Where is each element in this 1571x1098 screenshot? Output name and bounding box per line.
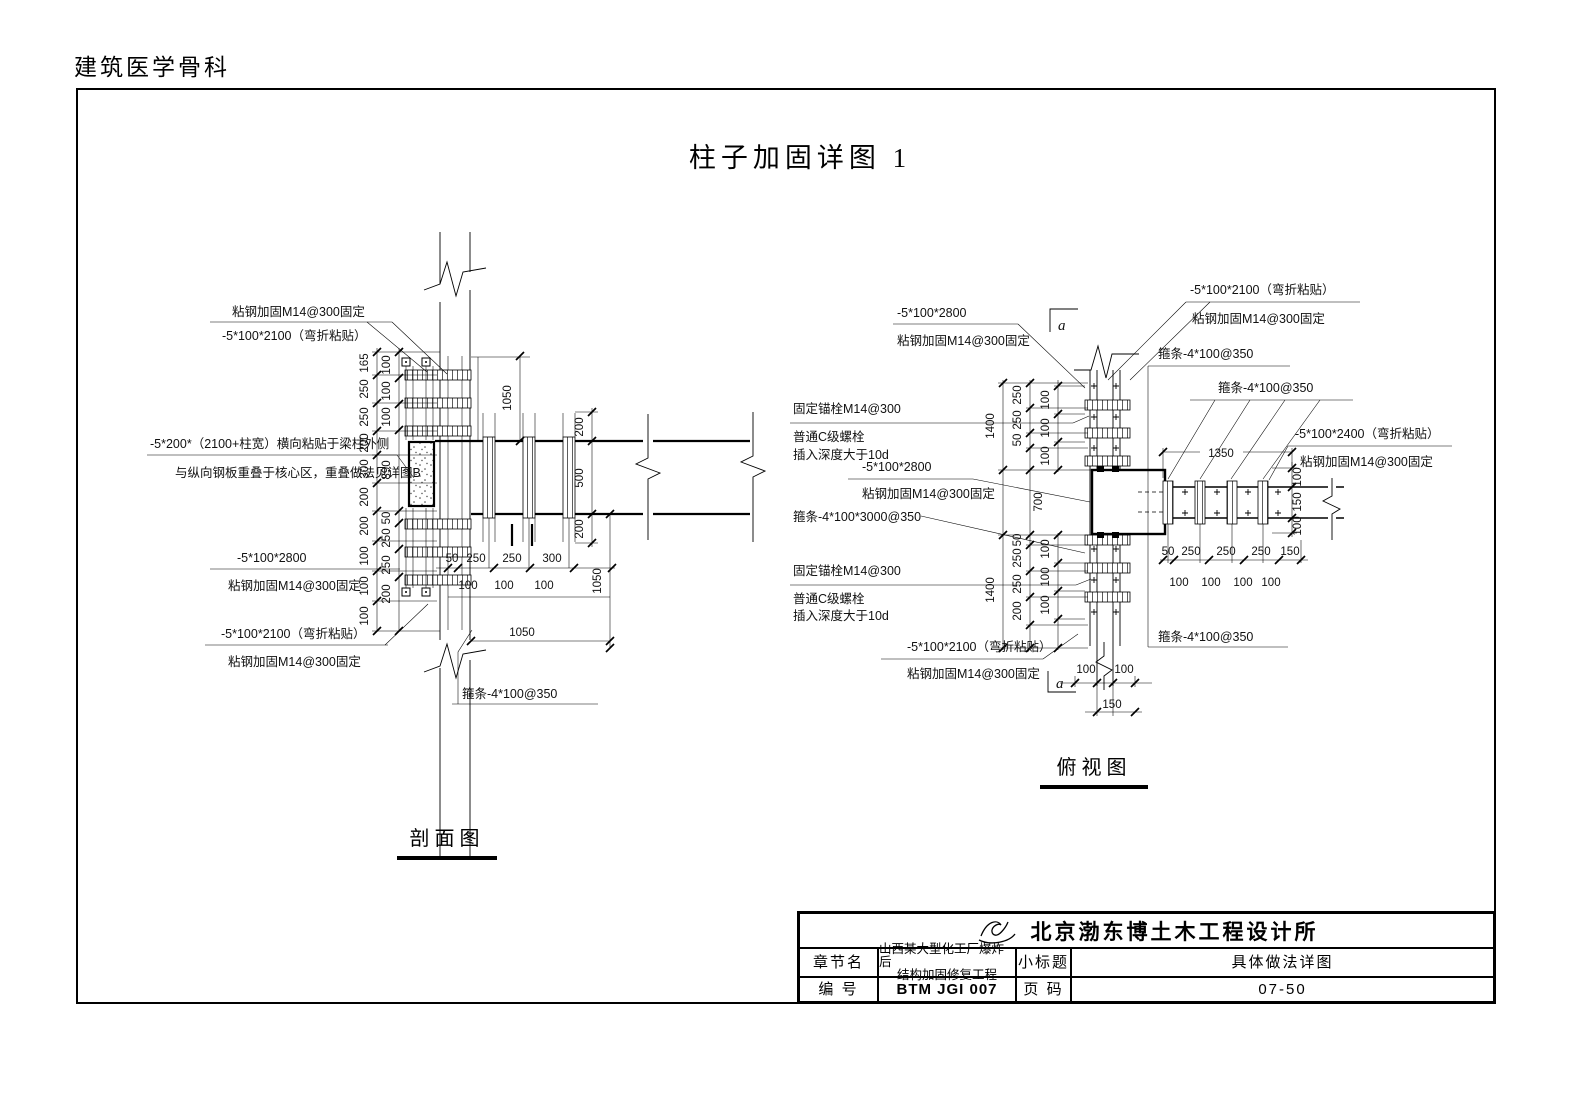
annotation-bolt2: 普通C级螺栓 bbox=[793, 591, 865, 606]
svg-text:50: 50 bbox=[446, 553, 459, 565]
svg-text:500: 500 bbox=[574, 468, 586, 487]
plan-view-drawing: 1400 1400 250 250 50 700 50 250 250 200 … bbox=[790, 282, 1452, 716]
svg-text:250: 250 bbox=[1216, 546, 1235, 558]
chapter-label: 章节名 bbox=[800, 949, 879, 978]
svg-text:150: 150 bbox=[1280, 546, 1299, 558]
svg-text:250: 250 bbox=[1251, 546, 1270, 558]
annotation-topleft-line2: 粘钢加固M14@300固定 bbox=[897, 333, 1030, 348]
svg-text:250: 250 bbox=[1012, 410, 1024, 429]
drawing-number: BTM JGI 007 bbox=[879, 978, 1017, 1001]
annotation-bottom-line2: 粘钢加固M14@300固定 bbox=[907, 666, 1040, 681]
annotation-bottom-line1: -5*100*2100（弯折粘贴） bbox=[907, 639, 1052, 654]
annotation-anchor1: 固定锚栓M14@300 bbox=[793, 401, 901, 416]
annotation-topright-line2: 粘钢加固M14@300固定 bbox=[1192, 311, 1325, 326]
svg-text:50: 50 bbox=[1012, 534, 1024, 547]
company-logo-icon bbox=[975, 917, 1019, 945]
svg-text:250: 250 bbox=[359, 379, 371, 398]
plan-dimensions: 1400 1400 250 250 50 700 50 250 250 200 … bbox=[985, 379, 1308, 716]
svg-text:200: 200 bbox=[359, 487, 371, 506]
number-label: 编 号 bbox=[800, 978, 879, 1001]
section-view-drawing: 165 250 250 200 300 200 100 100 100 890 … bbox=[147, 232, 765, 856]
svg-text:700: 700 bbox=[1033, 492, 1045, 511]
annotation-right-line1: -5*100*2400（弯折粘贴） bbox=[1295, 426, 1440, 441]
svg-text:100: 100 bbox=[1261, 577, 1280, 589]
svg-text:300: 300 bbox=[542, 553, 561, 565]
annotation-hoop-bottom: 箍条-4*100@350 bbox=[1158, 629, 1253, 644]
section-view-caption: 剖面图 bbox=[397, 822, 497, 860]
svg-text:200: 200 bbox=[381, 584, 393, 603]
annotation-top-line1: 粘钢加固M14@300固定 bbox=[232, 304, 365, 319]
svg-text:100: 100 bbox=[534, 580, 553, 592]
company-name: 北京渤东博土木工程设计所 bbox=[1031, 916, 1319, 946]
plan-beam bbox=[1163, 478, 1344, 540]
svg-text:100: 100 bbox=[1040, 539, 1052, 558]
annotation-side-line2: 与纵向钢板重叠于核心区，重叠做法见详图B bbox=[175, 465, 421, 480]
svg-text:100: 100 bbox=[359, 546, 371, 565]
svg-text:100: 100 bbox=[1076, 664, 1095, 676]
svg-text:100: 100 bbox=[381, 407, 393, 426]
svg-text:100: 100 bbox=[1040, 446, 1052, 465]
svg-text:250: 250 bbox=[381, 555, 393, 574]
plan-view-caption: 俯视图 bbox=[1040, 751, 1148, 789]
annotation-topleft-line1: -5*100*2800 bbox=[897, 306, 967, 320]
title-block-grid: 章节名 山西某大型化工厂爆炸后 结构加固修复工程 小标题 具体做法详图 编 号 … bbox=[800, 949, 1493, 1001]
annotation-hoop-mid: 箍条-4*100*3000@350 bbox=[793, 509, 921, 524]
svg-text:50: 50 bbox=[1012, 434, 1024, 447]
page-number: 07-50 bbox=[1072, 978, 1493, 1001]
annotation-low2-line2: 粘钢加固M14@300固定 bbox=[228, 654, 361, 669]
svg-text:250: 250 bbox=[359, 407, 371, 426]
svg-text:250: 250 bbox=[502, 553, 521, 565]
annotation-hoop: 箍条-4*100@350 bbox=[462, 686, 557, 701]
annotation-anchor2: 固定锚栓M14@300 bbox=[793, 563, 901, 578]
svg-text:100: 100 bbox=[1233, 577, 1252, 589]
svg-text:100: 100 bbox=[1292, 467, 1304, 486]
svg-text:200: 200 bbox=[574, 417, 586, 436]
svg-text:100: 100 bbox=[1114, 664, 1133, 676]
svg-text:100: 100 bbox=[458, 580, 477, 592]
section-beam bbox=[435, 412, 765, 568]
annotation-topright-line1: -5*100*2100（弯折粘贴） bbox=[1190, 282, 1335, 297]
svg-text:250: 250 bbox=[1012, 548, 1024, 567]
svg-text:250: 250 bbox=[466, 553, 485, 565]
svg-text:1350: 1350 bbox=[1208, 448, 1234, 460]
annotation-hoop-top: 箍条-4*100@350 bbox=[1158, 346, 1253, 361]
svg-text:100: 100 bbox=[359, 606, 371, 625]
page-label: 页 码 bbox=[1017, 978, 1072, 1001]
svg-text:165: 165 bbox=[359, 353, 371, 372]
svg-text:250: 250 bbox=[1012, 574, 1024, 593]
section-column bbox=[402, 232, 486, 856]
svg-text:100: 100 bbox=[1040, 595, 1052, 614]
svg-text:100: 100 bbox=[1169, 577, 1188, 589]
subtitle-value: 具体做法详图 bbox=[1072, 949, 1493, 978]
svg-text:200: 200 bbox=[574, 519, 586, 538]
project-name: 山西某大型化工厂爆炸后 结构加固修复工程 bbox=[879, 949, 1017, 978]
svg-text:100: 100 bbox=[381, 355, 393, 374]
annotation-bolt1: 普通C级螺栓 bbox=[793, 429, 865, 444]
svg-text:1400: 1400 bbox=[985, 577, 997, 603]
svg-text:100: 100 bbox=[1201, 577, 1220, 589]
svg-text:1050: 1050 bbox=[509, 627, 535, 639]
svg-text:1050: 1050 bbox=[592, 568, 604, 594]
svg-text:150: 150 bbox=[1292, 492, 1304, 511]
svg-text:100: 100 bbox=[494, 580, 513, 592]
svg-text:200: 200 bbox=[1012, 601, 1024, 620]
annotation-low1-line2: 粘钢加固M14@300固定 bbox=[228, 578, 361, 593]
section-marker-a-top: a bbox=[1058, 318, 1066, 334]
drawing-sheet: 建筑医学骨科 柱子加固详图 1 bbox=[0, 0, 1571, 1098]
svg-text:1400: 1400 bbox=[985, 413, 997, 439]
svg-text:50: 50 bbox=[1162, 546, 1175, 558]
svg-text:250: 250 bbox=[381, 528, 393, 547]
title-block: 北京渤东博土木工程设计所 章节名 山西某大型化工厂爆炸后 结构加固修复工程 小标… bbox=[797, 911, 1496, 1004]
svg-text:250: 250 bbox=[1012, 385, 1024, 404]
svg-text:1050: 1050 bbox=[502, 385, 514, 411]
project-name-line1: 山西某大型化工厂爆炸后 bbox=[879, 943, 1015, 969]
annotation-low2-line1: -5*100*2100（弯折粘贴） bbox=[221, 626, 366, 641]
svg-text:250: 250 bbox=[1181, 546, 1200, 558]
svg-text:100: 100 bbox=[381, 381, 393, 400]
annotation-right-line2: 粘钢加固M14@300固定 bbox=[1300, 454, 1433, 469]
section-marker-a-bottom: a bbox=[1056, 676, 1064, 692]
annotation-side-line1: -5*200*（2100+柱宽）横向粘贴于梁柱外侧 bbox=[150, 436, 389, 451]
svg-text:150: 150 bbox=[1102, 699, 1121, 711]
annotation-low1-line1: -5*100*2800 bbox=[237, 551, 307, 565]
svg-text:100: 100 bbox=[1040, 390, 1052, 409]
svg-text:100: 100 bbox=[1040, 418, 1052, 437]
subtitle-label: 小标题 bbox=[1017, 949, 1072, 978]
annotation-hoop-fan: 箍条-4*100@350 bbox=[1218, 380, 1313, 395]
svg-text:50: 50 bbox=[381, 512, 393, 525]
annotation-top-line2: -5*100*2100（弯折粘贴） bbox=[222, 328, 367, 343]
annotation-depth2: 插入深度大于10d bbox=[793, 608, 889, 623]
svg-text:100: 100 bbox=[1040, 567, 1052, 586]
svg-text:100: 100 bbox=[1292, 516, 1304, 535]
annotation-mid-line1: -5*100*2800 bbox=[862, 460, 932, 474]
plan-joint bbox=[1092, 466, 1165, 538]
annotation-mid-line2: 粘钢加固M14@300固定 bbox=[862, 486, 995, 501]
svg-text:200: 200 bbox=[359, 516, 371, 535]
